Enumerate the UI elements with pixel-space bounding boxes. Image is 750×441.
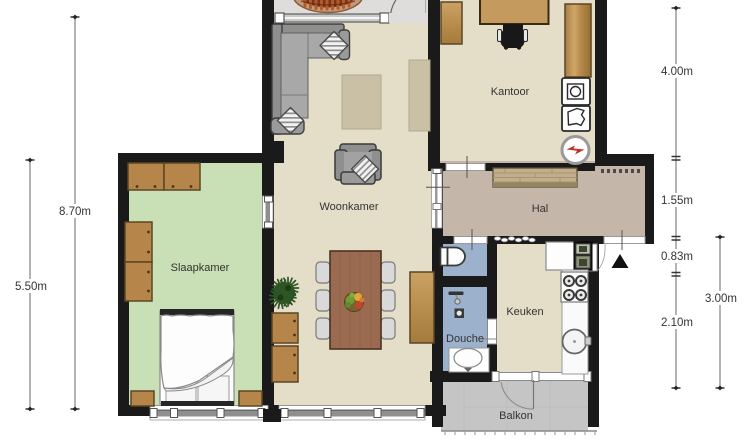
svg-text:Balkon: Balkon	[499, 410, 533, 422]
svg-text:8.70m: 8.70m	[59, 206, 91, 218]
svg-text:2.10m: 2.10m	[661, 317, 693, 329]
svg-text:5.50m: 5.50m	[15, 281, 47, 293]
svg-text:3.00m: 3.00m	[705, 293, 737, 305]
svg-text:4.00m: 4.00m	[661, 66, 693, 78]
svg-text:1.55m: 1.55m	[661, 195, 693, 207]
svg-text:Woonkamer: Woonkamer	[319, 201, 378, 213]
svg-text:0.83m: 0.83m	[661, 251, 693, 263]
svg-text:Keuken: Keuken	[506, 306, 543, 318]
svg-text:Kantoor: Kantoor	[491, 86, 530, 98]
svg-text:Slaapkamer: Slaapkamer	[171, 262, 230, 274]
svg-text:Douche: Douche	[446, 333, 484, 345]
svg-text:Hal: Hal	[532, 203, 549, 215]
